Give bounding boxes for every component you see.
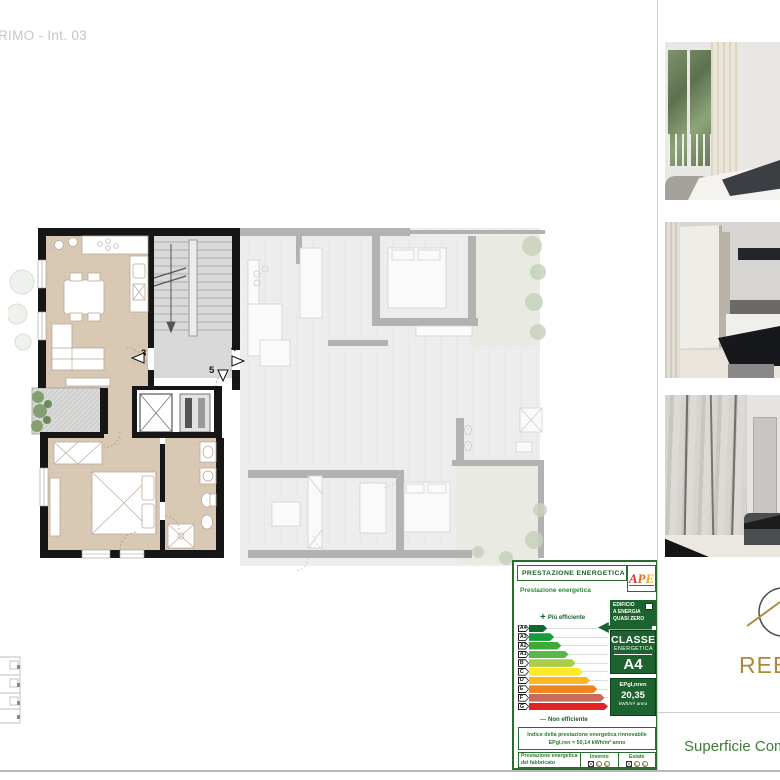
smiley-icon xyxy=(634,761,640,767)
energy-class-tag: G xyxy=(518,703,529,711)
energy-class-tag: F xyxy=(518,694,529,702)
page-title: RIMO - Int. 03 xyxy=(0,28,87,43)
energy-class-bar xyxy=(529,694,605,702)
winter-icons xyxy=(583,761,616,767)
energy-class-tag: E xyxy=(518,685,529,693)
faded-apartments xyxy=(240,228,547,571)
certificate-subtitle: Prestazione energetica xyxy=(520,587,591,594)
energy-class-row: F xyxy=(518,694,608,703)
energy-class-bar xyxy=(529,677,590,685)
logo-circle xyxy=(759,588,780,636)
energy-class-row: A1 xyxy=(518,650,608,659)
plus-icon: + xyxy=(540,612,546,623)
class-box-subtitle: ENERGETICA xyxy=(614,646,652,655)
ep-unit: kWh/m² anno xyxy=(611,702,655,707)
energy-class-row: E xyxy=(518,685,608,694)
wardrobe-streak xyxy=(710,395,714,535)
brochure-page: RIMO - Int. 03 xyxy=(0,0,780,780)
energy-class-tag: A1 xyxy=(518,651,529,659)
ep-label: EPgl,nren xyxy=(611,682,655,688)
energy-class-bar xyxy=(529,659,576,667)
nzeb-line: QUASI ZERO xyxy=(613,616,656,623)
crossed-icon xyxy=(626,761,632,767)
smiley-icon xyxy=(642,761,648,767)
wardrobe-streak xyxy=(731,395,737,535)
summer-cell: Estate xyxy=(619,753,656,767)
energy-class-row: A3 xyxy=(518,633,608,642)
red-dash-icon: — xyxy=(540,717,546,723)
energy-class-row: G xyxy=(518,702,608,711)
smiley-icon xyxy=(604,761,610,767)
energy-class-row: D xyxy=(518,676,608,685)
wall-shelf xyxy=(738,248,780,260)
energy-class-row: C xyxy=(518,667,608,676)
crossed-icon xyxy=(588,761,594,767)
renewable-line1: Indice della prestazione energetica rinn… xyxy=(519,731,655,739)
curtain xyxy=(665,222,680,378)
energy-class-tag: A4 xyxy=(518,625,529,633)
floor-plan: 3 4 5 xyxy=(8,220,548,575)
building-performance-label: Prestazione energetica del fabbricato xyxy=(519,753,581,767)
photo-bedroom-window xyxy=(665,42,780,200)
less-efficient-label: —Non efficiente xyxy=(540,717,588,723)
open-door xyxy=(680,225,722,348)
energy-class-bar xyxy=(529,633,554,641)
winter-label: Inverno xyxy=(583,754,616,760)
class-box-title: CLASSE xyxy=(611,634,655,646)
building-performance-row: Prestazione energetica del fabbricato In… xyxy=(518,752,656,768)
bed-bench xyxy=(728,364,774,378)
energy-class-bar xyxy=(529,642,561,650)
energy-class-row: A4 xyxy=(518,624,608,633)
vertical-divider xyxy=(657,0,658,771)
more-efficient-label: +Più efficiente xyxy=(540,612,585,623)
energy-class-bar xyxy=(529,625,547,633)
energy-class-bar xyxy=(529,703,608,711)
renewable-line2: EPgl,ren = 50,14 kWh/m² anno xyxy=(519,739,655,747)
nzeb-line: A ENERGIA xyxy=(613,609,656,616)
energy-class-tag: D xyxy=(518,677,529,685)
photo-wardrobe xyxy=(665,395,780,557)
balcony-railing xyxy=(668,134,712,166)
nzeb-badge: EDIFICIO A ENERGIA QUASI ZERO xyxy=(610,600,656,626)
energy-class-bar xyxy=(529,668,583,676)
agency-logo xyxy=(735,580,780,650)
page-bottom-rule xyxy=(0,770,780,772)
smiley-icon xyxy=(596,761,602,767)
summer-label: Estate xyxy=(621,754,654,760)
wardrobe-streak xyxy=(684,395,688,535)
energy-class-bar xyxy=(529,685,597,693)
ep-box: EPgl,nren 20,35 kWh/m² anno xyxy=(610,678,656,716)
curtain xyxy=(711,42,739,178)
energy-certificate: PRESTAZIONE ENERGETICA APE Prestazione e… xyxy=(512,560,658,770)
logo-gold-line xyxy=(747,602,780,626)
energy-class-tag: A3 xyxy=(518,633,529,641)
photo-bedroom-door xyxy=(665,222,780,378)
nzeb-checkbox xyxy=(645,603,653,610)
ep-value: 20,35 xyxy=(611,690,655,701)
ape-logo-text: APE xyxy=(629,572,654,586)
surface-label: Superficie Comm xyxy=(684,738,780,755)
energy-class-row: A2 xyxy=(518,641,608,650)
energy-class-tag: C xyxy=(518,668,529,676)
highlighted-apartment: 3 4 5 xyxy=(8,228,244,558)
winter-cell: Inverno xyxy=(581,753,619,767)
summer-icons xyxy=(621,761,654,767)
agency-logo-text: REB xyxy=(739,652,780,679)
ape-logo: APE xyxy=(627,565,656,592)
energy-class-row: B xyxy=(518,659,608,668)
doorway xyxy=(753,417,777,523)
entrance-number-4: 4 xyxy=(231,343,237,354)
horizontal-divider xyxy=(658,712,780,713)
energy-class-tag: B xyxy=(518,659,529,667)
entrance-number-5: 5 xyxy=(209,365,215,376)
energy-class-box: CLASSE ENERGETICA A4 xyxy=(610,630,656,674)
energy-class-value: A4 xyxy=(611,656,655,673)
energy-class-bar xyxy=(529,651,569,659)
certificate-title: PRESTAZIONE ENERGETICA xyxy=(517,565,627,581)
energy-scale: A4A3A2A1BCDEFG xyxy=(518,624,608,711)
energy-class-tag: A2 xyxy=(518,642,529,650)
renewable-index-box: Indice della prestazione energetica rinn… xyxy=(518,727,656,750)
key-plan xyxy=(0,653,30,727)
